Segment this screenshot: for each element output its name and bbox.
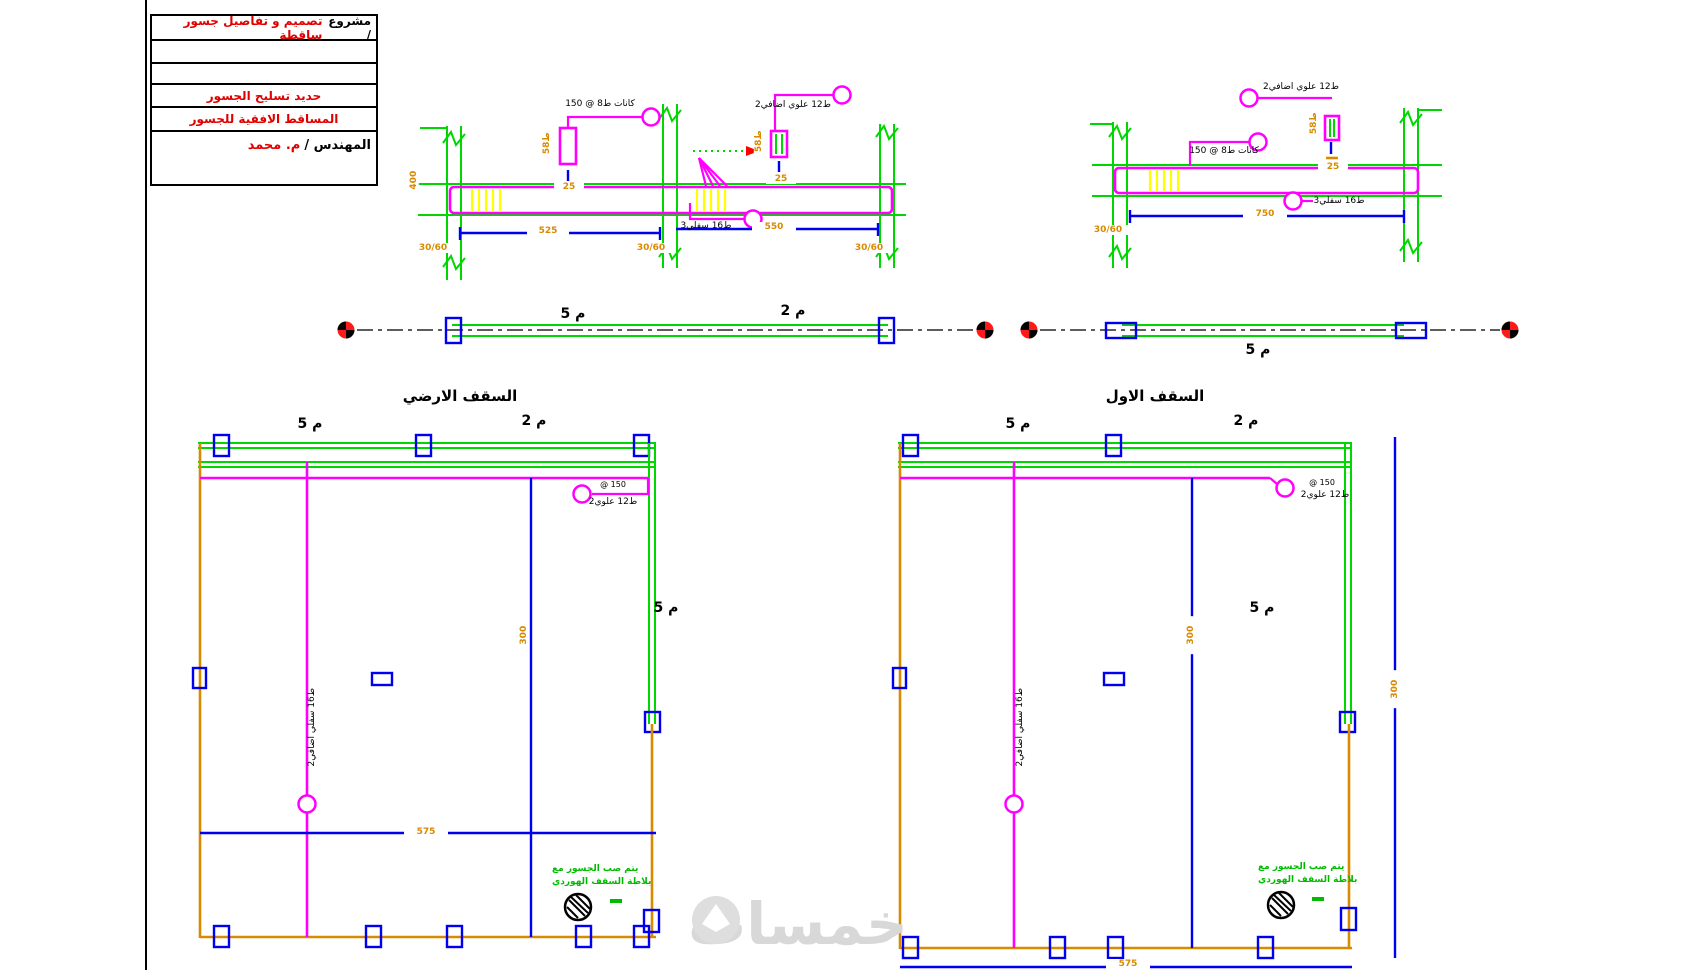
title-block: مشروع / تصميم و تفاصيل جسور ساقطة حديد ت…	[150, 14, 378, 186]
bottom-rebar-note: 3ط16 سفلي	[1303, 196, 1375, 206]
engineer-name: م. محمد	[248, 138, 301, 153]
beam-mark: م 5	[1240, 342, 1276, 358]
grid-axis-left	[338, 318, 994, 343]
plan-rebar-note: 2ط12 علوي	[568, 497, 658, 507]
pour-note-line1: يتم صب الجسور مع	[1258, 862, 1340, 872]
stirrup-spacing: 25	[766, 174, 796, 184]
top-rebar-note: 2ط12 علوي اضافي	[748, 100, 838, 110]
rebar-balloon	[643, 109, 660, 126]
grid-bubble	[1021, 322, 1038, 339]
beam-outline-1	[450, 187, 892, 213]
khamsat-watermark: خمسات	[688, 890, 908, 958]
stirrup-symbol	[1325, 116, 1339, 140]
plan-rebar-note-vertical: 2ط16 سفلي اضافي	[307, 667, 317, 787]
beam-elevation-detail-2	[1090, 90, 1442, 269]
stirrup-spacing-note: كانات ط8 @ 150	[1180, 146, 1268, 156]
dim-text-vertical: 300	[1390, 670, 1400, 708]
plan-rebar-note-vertical: 2ط16 سفلي اضافي	[1015, 667, 1025, 787]
drawing-content: المساقط الافقية للجسور	[190, 112, 339, 126]
grid-bubble	[1502, 322, 1519, 339]
plan-view-right	[893, 435, 1395, 967]
stirrup-count: 5ط8	[542, 126, 552, 160]
title-block-engineer-row: المهندس / م. محمد	[152, 132, 376, 184]
pour-note-line1: يتم صب الجسور مع	[552, 864, 634, 874]
column-tie	[1104, 673, 1124, 685]
rebar-balloon	[1285, 193, 1302, 210]
column-size-label: 30/60	[849, 243, 889, 253]
dim-text: 575	[1106, 959, 1150, 969]
rebar-spacing-sub: @ 150	[1292, 478, 1352, 487]
stirrup-count: 5ط8	[754, 124, 764, 158]
stirrup-group-1	[472, 189, 500, 212]
rebar-balloon	[299, 796, 316, 813]
stirrup-count: 5ط8	[1309, 106, 1319, 140]
title-block-content-row: المساقط الافقية للجسور	[152, 108, 376, 132]
title-block-empty-row	[152, 41, 376, 64]
beam-mark: م 5	[648, 600, 684, 616]
column-size-label: 30/60	[413, 243, 453, 253]
project-label: مشروع /	[326, 16, 371, 41]
rebar-balloon	[1006, 796, 1023, 813]
section-cut-indicator	[693, 146, 759, 186]
column-tie	[1106, 435, 1121, 456]
stirrup-spacing-note: كانات ط8 @ 150	[553, 99, 647, 109]
rebar-balloon	[1241, 90, 1258, 107]
dim-text-vertical: 300	[519, 616, 529, 654]
dim-text: 550	[752, 222, 796, 232]
column-tie	[903, 435, 918, 456]
plan-title-right: السقف الاول	[1075, 388, 1235, 405]
beam-mark: م 5	[1000, 416, 1036, 432]
stirrup-symbol	[771, 131, 787, 157]
drawing-subject: حديد تسليح الجسور	[207, 89, 321, 103]
dim-text: 575	[404, 827, 448, 837]
pour-note-line2: بلاطة السقف الهوردي	[1258, 875, 1340, 885]
engineer-label: المهندس /	[304, 138, 371, 153]
dim-text: 750	[1243, 209, 1287, 219]
stirrup-spacing: 25	[554, 182, 584, 192]
column-size-label: 30/60	[1088, 225, 1128, 235]
cad-sheet: مشروع / تصميم و تفاصيل جسور ساقطة حديد ت…	[0, 0, 1700, 970]
rebar-spacing-sub: @ 150	[590, 480, 636, 489]
title-block-empty-row	[152, 64, 376, 85]
column-size-label: 30/60	[631, 243, 671, 253]
project-name: تصميم و تفاصيل جسور ساقطة	[161, 16, 322, 41]
grid-bubble	[977, 322, 994, 339]
stirrup-spacing: 25	[1318, 162, 1348, 172]
dim-text: 525	[527, 226, 569, 236]
grid-axis-right	[1021, 322, 1519, 339]
stirrup-group-2	[697, 189, 725, 212]
column-tie	[634, 435, 649, 456]
detail-reference-circle	[565, 894, 591, 920]
dim-text-vertical: 300	[1186, 616, 1196, 654]
title-block-subject-row: حديد تسليح الجسور	[152, 85, 376, 108]
column-tie	[1340, 712, 1355, 732]
top-rebar-note: 2ط12 علوي اضافي	[1256, 82, 1346, 92]
beam-mark: م 2	[516, 413, 552, 429]
beam-outline-2	[1115, 168, 1418, 193]
pour-note-line2: بلاطة السقف الهوردي	[552, 877, 634, 887]
beam-mark: م 5	[1244, 600, 1280, 616]
stirrup-group-3	[1150, 170, 1178, 192]
beam-mark: م 5	[555, 306, 591, 322]
dim-text-vertical: 400	[409, 161, 419, 199]
detail-reference-circle	[1268, 892, 1294, 918]
beam-mark: م 2	[1228, 413, 1264, 429]
grid-bubble	[338, 322, 355, 339]
column-tie	[372, 673, 392, 685]
title-block-project-row: مشروع / تصميم و تفاصيل جسور ساقطة	[152, 16, 376, 41]
beam-mark: م 5	[292, 416, 328, 432]
stirrup-symbol	[560, 128, 576, 164]
khamsat-logo-icon	[688, 890, 744, 946]
bottom-rebar-note: 3ط16 سفلي	[663, 221, 749, 231]
beam-mark: م 2	[775, 303, 811, 319]
plan-title-left: السقف الارضي	[380, 388, 540, 405]
column-tie	[416, 435, 431, 456]
plan-rebar-note: 2ط12 علوي	[1290, 490, 1360, 500]
column-tie	[214, 435, 229, 456]
